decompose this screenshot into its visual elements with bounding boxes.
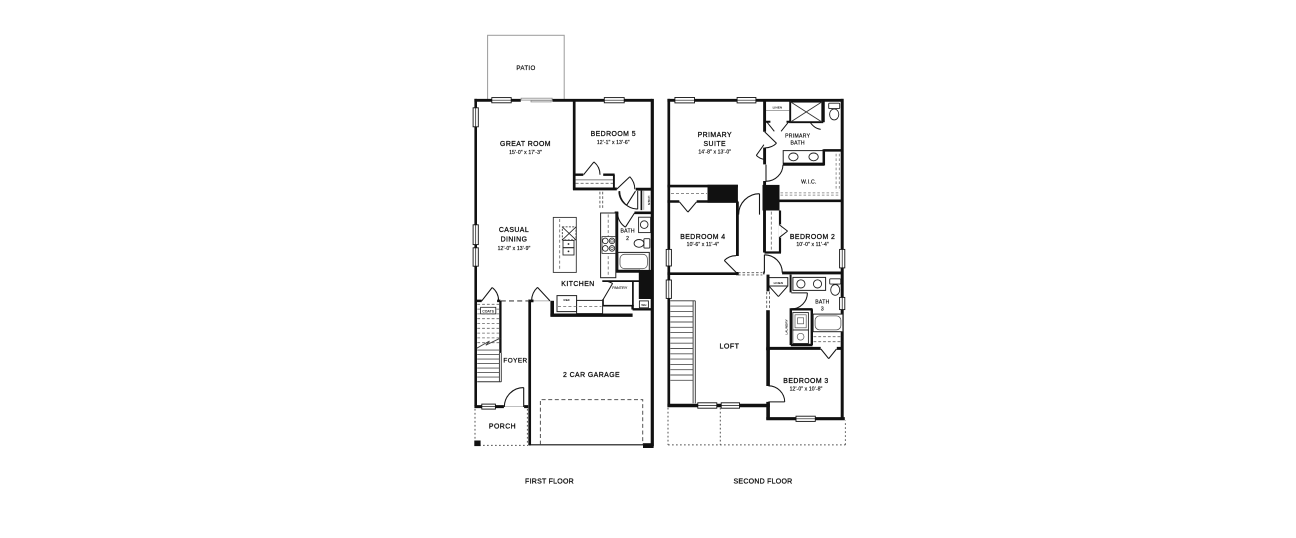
svg-text:BEDROOM 3: BEDROOM 3: [783, 378, 828, 385]
svg-text:PANTRY: PANTRY: [612, 286, 628, 290]
svg-text:PATIO: PATIO: [516, 65, 535, 72]
svg-text:PORCH: PORCH: [489, 423, 516, 430]
svg-text:BEDROOM 4: BEDROOM 4: [680, 234, 725, 241]
svg-text:SUITE: SUITE: [704, 141, 727, 148]
svg-text:PRIMARY: PRIMARY: [785, 133, 811, 139]
svg-text:LINEN: LINEN: [774, 281, 783, 285]
svg-text:LINEN: LINEN: [647, 196, 651, 205]
svg-text:12'-0" x 10'-8": 12'-0" x 10'-8": [790, 387, 823, 393]
svg-text:15'-0" x 17'-3": 15'-0" x 17'-3": [509, 150, 542, 156]
svg-text:LINEN: LINEN: [773, 106, 783, 110]
svg-text:10'-0" x 11'-4": 10'-0" x 11'-4": [796, 242, 829, 248]
svg-text:KITCHEN: KITCHEN: [561, 281, 594, 288]
svg-text:14'-8" x 13'-0": 14'-8" x 13'-0": [698, 150, 731, 156]
svg-text:GREAT ROOM: GREAT ROOM: [500, 141, 551, 148]
svg-text:SECOND FLOOR: SECOND FLOOR: [733, 478, 792, 485]
svg-text:BEDROOM 2: BEDROOM 2: [790, 234, 835, 241]
svg-text:12'-0" x 13'-9": 12'-0" x 13'-9": [498, 246, 531, 252]
svg-text:LAUNDRY: LAUNDRY: [785, 319, 789, 334]
svg-text:DINING: DINING: [501, 237, 528, 244]
svg-text:BEDROOM 5: BEDROOM 5: [591, 131, 636, 138]
svg-text:PRIMARY: PRIMARY: [698, 132, 732, 139]
svg-text:BATH: BATH: [790, 141, 804, 147]
svg-text:BATH: BATH: [620, 228, 634, 234]
svg-text:2: 2: [626, 236, 629, 242]
svg-text:12'-1" x 13'-6": 12'-1" x 13'-6": [597, 140, 630, 146]
svg-text:3: 3: [821, 307, 824, 313]
svg-text:FOYER: FOYER: [503, 358, 527, 365]
svg-text:FIRST FLOOR: FIRST FLOOR: [525, 478, 574, 485]
svg-text:10'-6" x 11'-4": 10'-6" x 11'-4": [687, 242, 720, 248]
svg-text:2 CAR GARAGE: 2 CAR GARAGE: [563, 372, 620, 379]
svg-text:WH: WH: [641, 303, 646, 307]
svg-text:COATS: COATS: [482, 309, 494, 313]
svg-text:BATH: BATH: [815, 299, 829, 305]
svg-text:REF: REF: [564, 298, 571, 302]
svg-text:CASUAL: CASUAL: [499, 227, 529, 234]
svg-text:LOFT: LOFT: [720, 342, 740, 350]
svg-text:W.I.C.: W.I.C.: [801, 179, 817, 185]
